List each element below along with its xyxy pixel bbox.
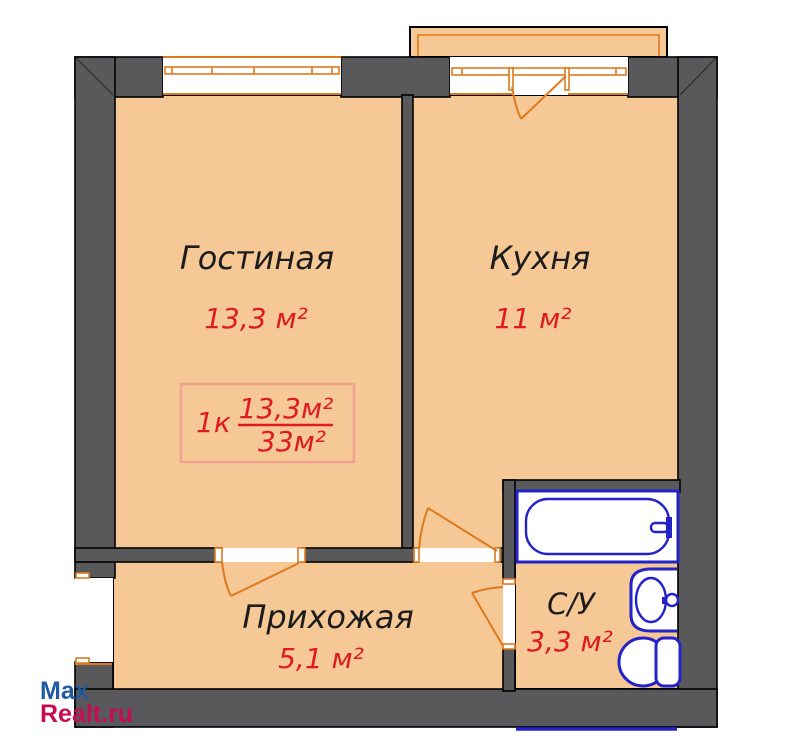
door-jamb [215, 548, 222, 562]
area-bathroom: 3,3 м² [527, 625, 613, 658]
area-kitchen: 11 м² [495, 302, 572, 335]
wall-bathroom-left-upper [503, 480, 515, 583]
info-rooms-count: 1к [196, 406, 231, 439]
area-living: 13,3 м² [204, 302, 308, 335]
label-living: Гостиная [180, 239, 334, 277]
balcony-door-jamb [509, 68, 513, 90]
wall-south-b [302, 548, 418, 562]
label-kitchen: Кухня [490, 239, 591, 277]
door-jamb [503, 644, 515, 649]
floor-plan-canvas: Гостиная 13,3 м² Кухня 11 м² Прихожая 5,… [0, 0, 800, 749]
window-opening [450, 57, 628, 95]
window-frame [452, 68, 626, 75]
sink-basin [636, 578, 666, 622]
info-total-area: 33м² [258, 425, 326, 458]
entrance-gap [75, 578, 113, 662]
toilet-tank [656, 638, 680, 686]
door-opening [503, 583, 515, 644]
door-jamb [503, 579, 515, 584]
wall-right [678, 57, 717, 727]
door-opening [418, 548, 498, 562]
wall-living-kitchen [402, 95, 413, 550]
door-jamb [298, 548, 305, 562]
entrance-opening [75, 573, 113, 664]
bathtub-faucet-bar [666, 517, 672, 538]
sink-faucet [666, 594, 678, 606]
window-living [163, 57, 341, 95]
wall-south-a [75, 548, 222, 562]
wall-top-middle [341, 57, 450, 97]
area-hallway: 5,1 м² [278, 642, 364, 675]
bathtub-faucet [651, 523, 668, 532]
label-bathroom: С/У [547, 587, 597, 621]
wall-left [75, 57, 115, 578]
entrance-jamb [76, 573, 89, 578]
room-floors [113, 27, 680, 691]
balcony [410, 27, 667, 57]
label-hallway: Прихожая [242, 598, 413, 636]
wall-bottom [75, 689, 717, 727]
watermark-line2: Realt.ru [40, 700, 133, 728]
floor-plan: Гостиная 13,3 м² Кухня 11 м² Прихожая 5,… [0, 0, 800, 749]
info-room-area: 13,3м² [239, 392, 334, 425]
window-frame [165, 67, 339, 74]
door-opening [222, 548, 302, 562]
window-opening [163, 57, 341, 95]
wall-bathroom-left-lower [503, 648, 515, 691]
balcony-door-jamb [565, 68, 569, 90]
door-jamb [414, 548, 419, 562]
entrance-jamb [76, 658, 89, 663]
